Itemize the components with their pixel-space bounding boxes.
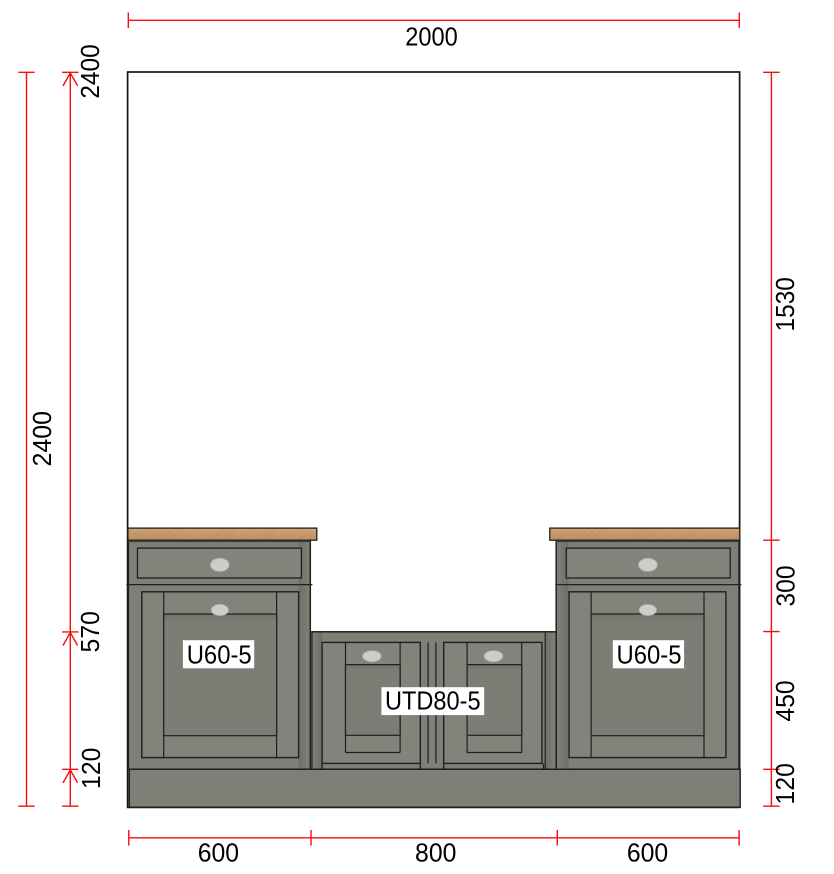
svg-text:450: 450 [772, 680, 800, 721]
svg-text:2400: 2400 [77, 44, 105, 98]
svg-text:UTD80-5: UTD80-5 [385, 686, 481, 716]
svg-text:800: 800 [415, 840, 456, 868]
svg-text:120: 120 [78, 748, 106, 789]
svg-text:120: 120 [772, 763, 800, 804]
svg-text:600: 600 [198, 840, 239, 868]
svg-text:570: 570 [77, 611, 105, 652]
svg-text:U60-5: U60-5 [617, 639, 682, 669]
svg-text:2400: 2400 [29, 411, 57, 467]
svg-text:2000: 2000 [405, 24, 458, 52]
svg-text:1530: 1530 [772, 277, 800, 331]
svg-text:U60-5: U60-5 [187, 639, 252, 669]
svg-text:600: 600 [627, 840, 668, 868]
svg-text:300: 300 [772, 565, 800, 606]
